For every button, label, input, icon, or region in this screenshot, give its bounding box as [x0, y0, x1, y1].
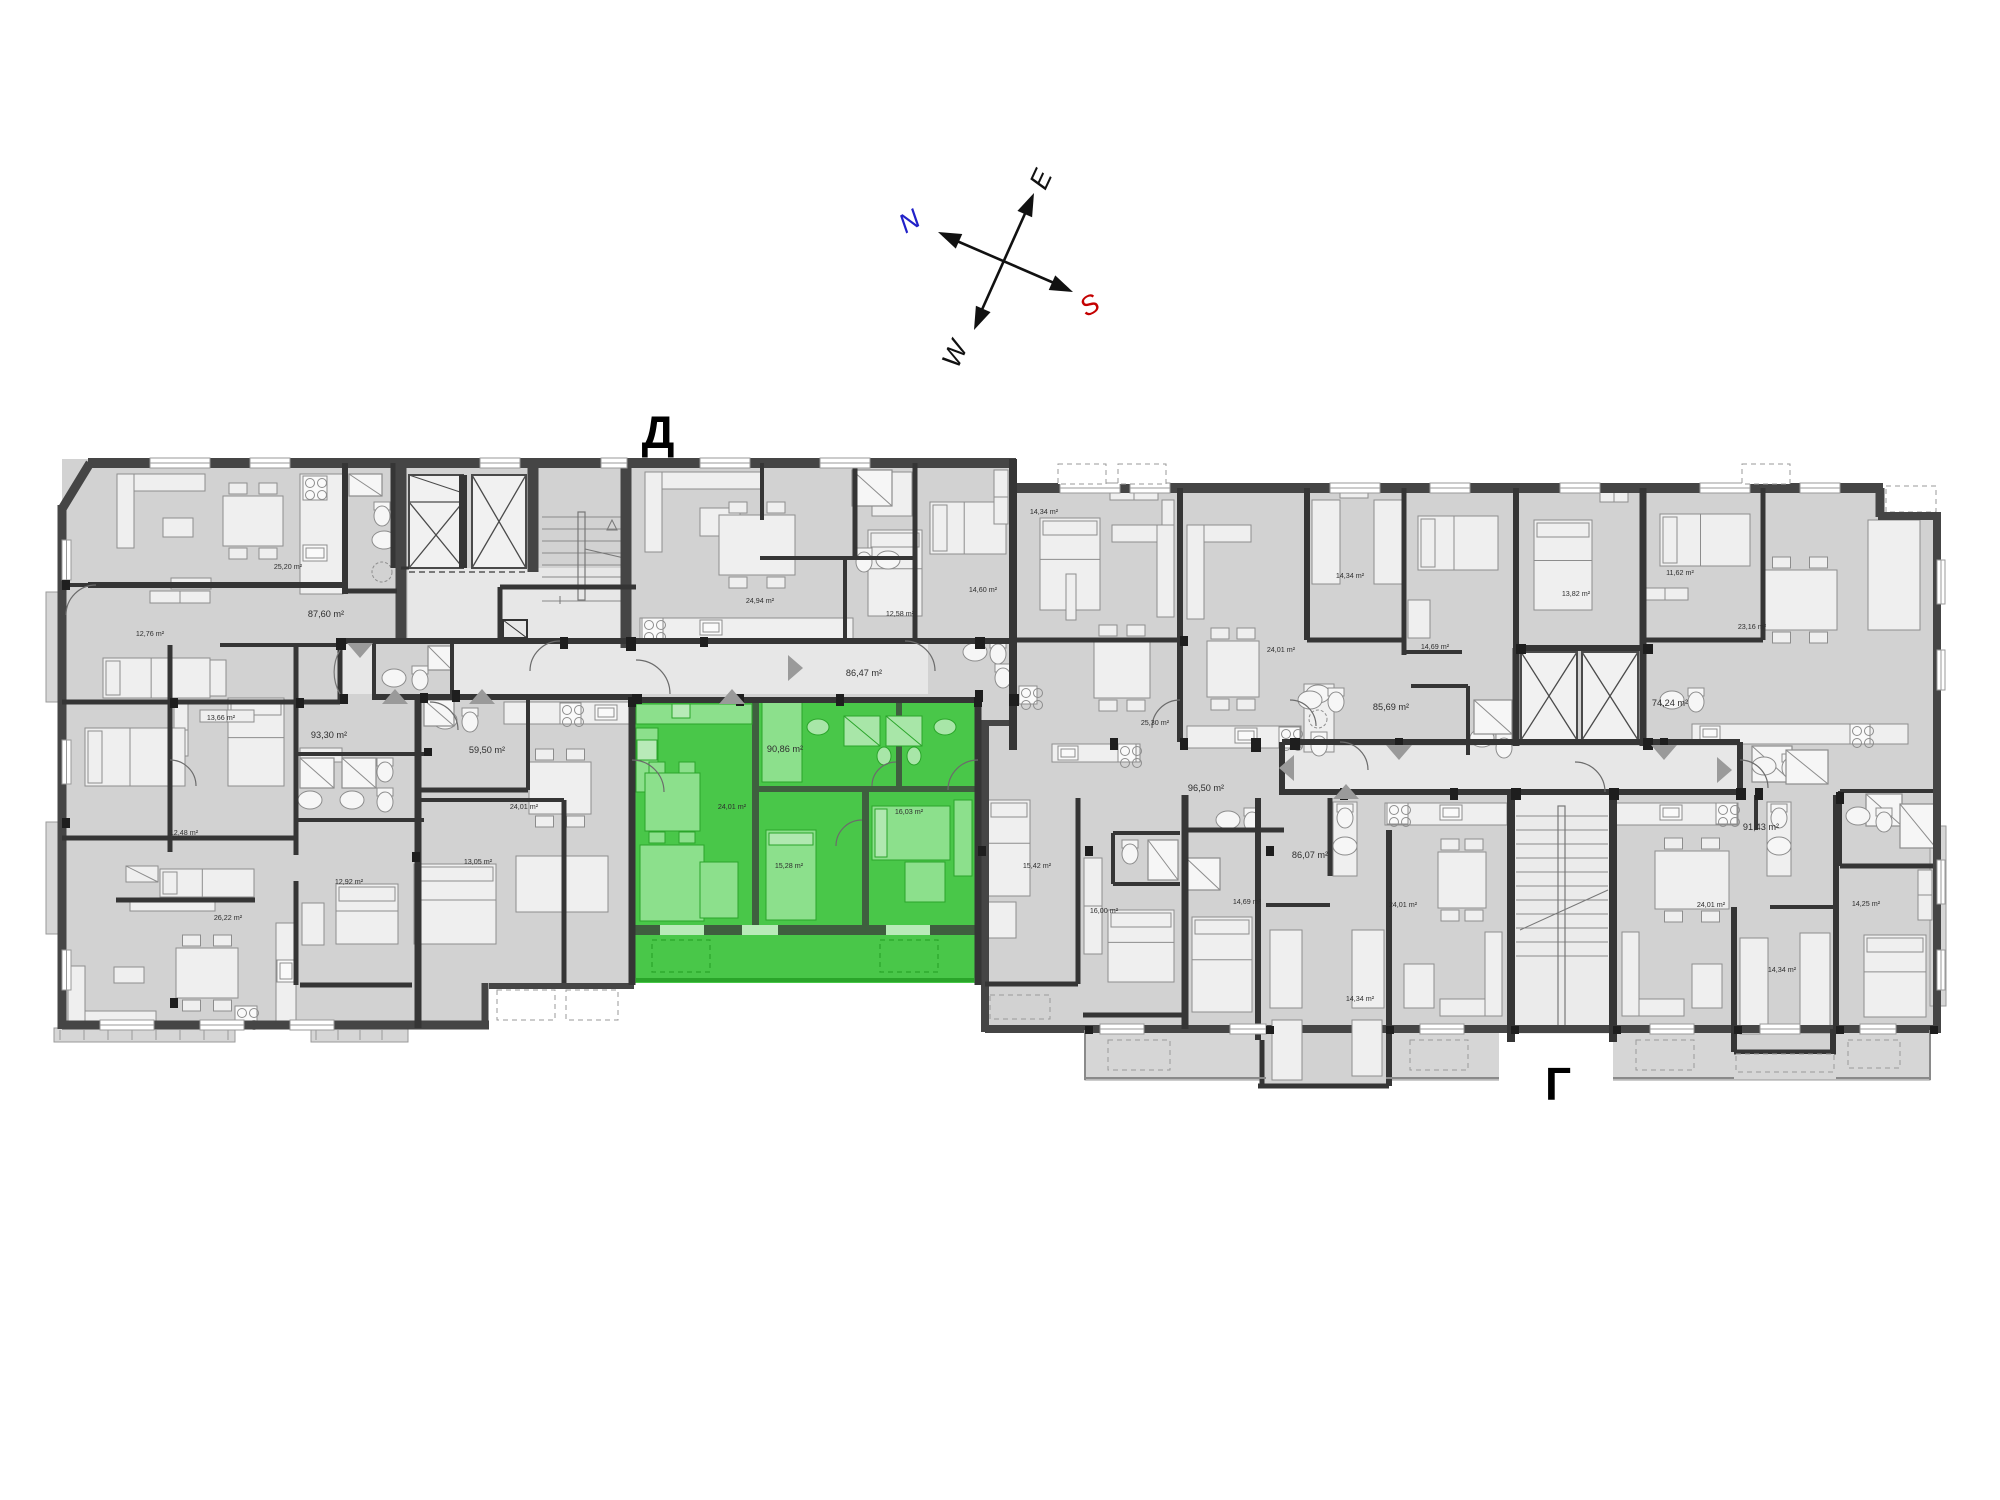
svg-text:14,34 m²: 14,34 m² [1346, 994, 1375, 1003]
svg-text:24,01 m²: 24,01 m² [1267, 645, 1296, 654]
svg-text:15,28 m²: 15,28 m² [775, 861, 804, 870]
svg-text:14,34 m²: 14,34 m² [1030, 507, 1059, 516]
svg-text:23,16 m²: 23,16 m² [1738, 622, 1767, 631]
svg-text:25,20 m²: 25,20 m² [274, 562, 303, 571]
svg-text:87,60 m²: 87,60 m² [308, 609, 344, 619]
svg-text:14,25 m²: 14,25 m² [1852, 899, 1881, 908]
svg-text:12,76 m²: 12,76 m² [136, 629, 165, 638]
svg-text:59,50 m²: 59,50 m² [469, 745, 505, 755]
svg-text:12,92 m²: 12,92 m² [335, 877, 364, 886]
svg-text:24,94 m²: 24,94 m² [746, 596, 775, 605]
svg-text:25,30 m²: 25,30 m² [1141, 718, 1170, 727]
svg-text:16,03 m²: 16,03 m² [895, 807, 924, 816]
svg-text:16,00 m²: 16,00 m² [1090, 906, 1119, 915]
svg-text:24,01 m²: 24,01 m² [1389, 900, 1418, 909]
svg-text:11,62 m²: 11,62 m² [1666, 568, 1694, 577]
svg-text:13,05 m²: 13,05 m² [464, 857, 493, 866]
svg-text:14,34 m²: 14,34 m² [1336, 571, 1365, 580]
svg-text:96,50 m²: 96,50 m² [1188, 783, 1224, 793]
svg-text:Д: Д [642, 406, 675, 458]
svg-text:24,01 m²: 24,01 m² [718, 802, 747, 811]
svg-text:85,69 m²: 85,69 m² [1373, 702, 1409, 712]
svg-text:24,01 m²: 24,01 m² [1697, 900, 1726, 909]
svg-text:14,69 m²: 14,69 m² [1421, 642, 1450, 651]
svg-text:14,60 m²: 14,60 m² [969, 585, 998, 594]
svg-text:14,69 m²: 14,69 m² [1233, 897, 1262, 906]
svg-text:86,47 m²: 86,47 m² [846, 668, 882, 678]
svg-text:14,34 m²: 14,34 m² [1768, 965, 1797, 974]
svg-text:Г: Г [1545, 1058, 1571, 1110]
svg-text:26,22 m²: 26,22 m² [214, 913, 243, 922]
svg-text:86,07 m²: 86,07 m² [1292, 850, 1328, 860]
svg-text:91,43 m²: 91,43 m² [1743, 822, 1779, 832]
svg-text:93,30 m²: 93,30 m² [311, 730, 347, 740]
svg-text:13,66 m²: 13,66 m² [207, 713, 236, 722]
svg-text:90,86 m²: 90,86 m² [767, 744, 803, 754]
svg-text:12,58 m²: 12,58 m² [886, 609, 915, 618]
svg-text:13,82 m²: 13,82 m² [1562, 589, 1591, 598]
svg-text:24,01 m²: 24,01 m² [510, 802, 539, 811]
svg-text:74,24 m²: 74,24 m² [1652, 698, 1688, 708]
svg-text:12,48 m²: 12,48 m² [170, 828, 199, 837]
svg-text:15,42 m²: 15,42 m² [1023, 861, 1052, 870]
